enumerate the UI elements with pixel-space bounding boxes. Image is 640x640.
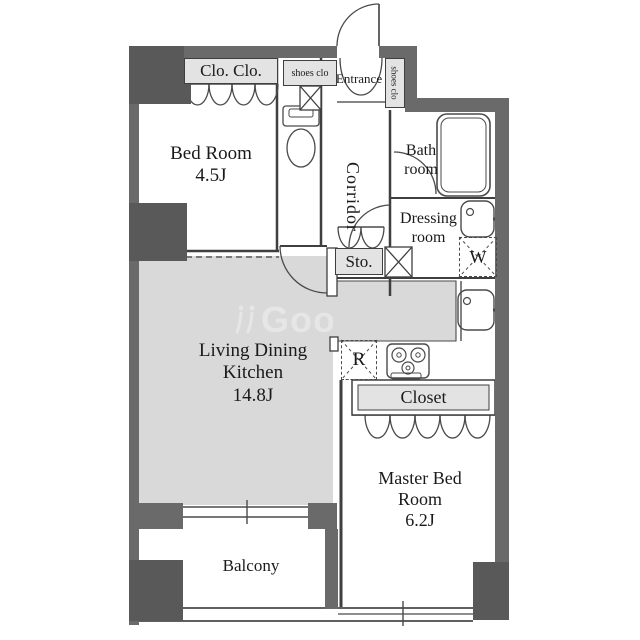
entrance-side-wall bbox=[405, 58, 417, 112]
shoes-closet-side-label: shoes clo bbox=[390, 66, 400, 99]
kitchen-floor bbox=[333, 281, 456, 341]
corridor-label: Corridor bbox=[341, 117, 363, 277]
ldk-name-1: Living Dining bbox=[153, 340, 353, 362]
master-name-2: Room bbox=[340, 489, 500, 510]
master-name-1: Master Bed bbox=[340, 468, 500, 489]
double-closet-label: Clo. Clo. bbox=[200, 61, 262, 81]
entrance-label: Entrance bbox=[327, 71, 391, 86]
top-left-pillar bbox=[129, 46, 191, 104]
left-outer-wall bbox=[129, 46, 139, 625]
stove-icon bbox=[387, 344, 429, 379]
balcony-separator-top bbox=[308, 503, 337, 529]
fixtures-layer bbox=[0, 0, 640, 640]
ldk-name-2: Kitchen bbox=[153, 362, 353, 384]
washing-machine-label: W bbox=[470, 247, 487, 268]
master-size: 6.2J bbox=[340, 510, 500, 531]
ldk-balcony-wall bbox=[129, 503, 183, 529]
ldk-label: Living Dining Kitchen 14.8J bbox=[153, 340, 353, 407]
shoes-closet-top-label: shoes clo bbox=[292, 68, 329, 79]
bottom-right-pillar bbox=[473, 562, 509, 620]
balcony-label: Balcony bbox=[171, 556, 331, 576]
dressing-name-1: Dressing bbox=[371, 210, 486, 229]
top-wall-right-of-entrance bbox=[379, 46, 417, 58]
master-bedroom-label: Master Bed Room 6.2J bbox=[340, 468, 500, 532]
refrigerator-label: R bbox=[353, 349, 366, 371]
dressing-room-label: Dressing room bbox=[371, 210, 486, 248]
bathroom-name-1: Bath bbox=[371, 142, 471, 161]
bathroom-name-2: room bbox=[371, 161, 471, 180]
bedroom-name: Bed Room bbox=[131, 143, 291, 165]
double-closet-box: Clo. Clo. bbox=[184, 58, 278, 84]
dressing-name-2: room bbox=[371, 229, 486, 248]
floorplan: GooRooM bbox=[0, 0, 640, 640]
bedroom-size: 4.5J bbox=[131, 165, 291, 187]
bedroom-label: Bed Room 4.5J bbox=[131, 143, 291, 188]
left-mid-pillar bbox=[129, 203, 187, 261]
top-wall bbox=[184, 46, 337, 58]
closet-label: Closet bbox=[358, 387, 489, 408]
bathroom-label: Bath room bbox=[371, 142, 471, 180]
ldk-size: 14.8J bbox=[153, 385, 353, 407]
